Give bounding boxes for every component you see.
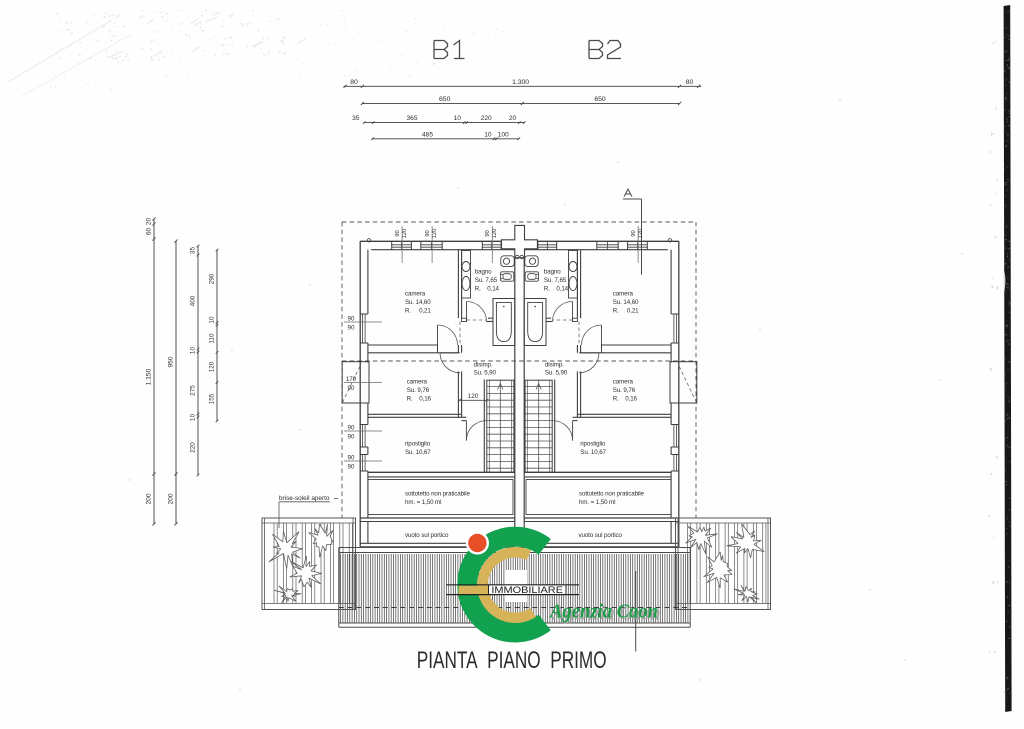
svg-text:200: 200 xyxy=(168,493,175,504)
svg-text:200: 200 xyxy=(146,493,153,504)
svg-text:90: 90 xyxy=(395,230,401,236)
svg-text:365: 365 xyxy=(406,115,417,122)
svg-text:Agenzia Caon: Agenzia Caon xyxy=(548,601,658,623)
svg-text:camera: camera xyxy=(405,291,426,298)
svg-text:80: 80 xyxy=(350,79,358,86)
svg-text:155: 155 xyxy=(209,393,216,404)
svg-text:R. 0,16: R. 0,16 xyxy=(407,395,432,402)
svg-text:90: 90 xyxy=(348,463,355,470)
svg-text:120: 120 xyxy=(492,229,498,239)
svg-text:R. 0,14: R. 0,14 xyxy=(544,285,569,292)
svg-text:170: 170 xyxy=(346,376,357,383)
svg-text:camera: camera xyxy=(407,379,428,386)
svg-text:sottotetto non praticabile: sottotetto non praticabile xyxy=(579,491,644,498)
svg-text:20: 20 xyxy=(146,218,153,226)
svg-text:camera: camera xyxy=(613,379,634,386)
svg-text:90: 90 xyxy=(631,230,637,236)
svg-text:90: 90 xyxy=(348,454,355,461)
svg-text:90: 90 xyxy=(348,315,355,322)
svg-text:10: 10 xyxy=(484,131,492,138)
svg-text:950: 950 xyxy=(168,356,175,367)
svg-text:90: 90 xyxy=(425,230,431,236)
svg-text:120: 120 xyxy=(402,229,408,239)
svg-text:10: 10 xyxy=(454,115,462,122)
svg-text:R. 0,21: R. 0,21 xyxy=(405,307,431,314)
svg-text:R. 0,14: R. 0,14 xyxy=(475,285,500,292)
svg-text:Su. 9,76: Su. 9,76 xyxy=(407,387,430,394)
svg-text:Su. 7,65: Su. 7,65 xyxy=(475,277,498,284)
svg-text:disimp.: disimp. xyxy=(545,361,564,368)
svg-text:90: 90 xyxy=(485,230,491,236)
svg-text:R. 0,21: R. 0,21 xyxy=(613,307,639,314)
svg-text:110: 110 xyxy=(209,333,216,344)
svg-text:Su. 10,67: Su. 10,67 xyxy=(405,449,431,456)
svg-text:PIANTA PIANO PRIMO: PIANTA PIANO PRIMO xyxy=(417,647,607,674)
svg-text:IMMOBILIARE: IMMOBILIARE xyxy=(491,585,563,595)
svg-text:120: 120 xyxy=(209,361,216,372)
svg-text:1.300: 1.300 xyxy=(512,79,529,86)
svg-text:90: 90 xyxy=(348,324,355,331)
svg-text:220: 220 xyxy=(481,115,492,122)
svg-text:120: 120 xyxy=(638,229,644,239)
svg-text:Su. 14,60: Su. 14,60 xyxy=(405,299,431,306)
svg-text:camera: camera xyxy=(613,291,634,298)
svg-text:hm. = 1,50 ml: hm. = 1,50 ml xyxy=(405,499,441,506)
svg-text:120: 120 xyxy=(468,393,479,400)
svg-text:vuoto sul portico: vuoto sul portico xyxy=(579,532,623,539)
svg-text:10: 10 xyxy=(190,347,197,355)
svg-text:brise-soleil aperto: brise-soleil aperto xyxy=(279,495,330,502)
svg-text:20: 20 xyxy=(509,115,517,122)
svg-text:650: 650 xyxy=(439,96,451,103)
svg-text:disimp.: disimp. xyxy=(474,361,493,368)
svg-text:Su. 9,76: Su. 9,76 xyxy=(613,387,636,394)
svg-text:100: 100 xyxy=(498,131,509,138)
svg-text:Su. 5,90: Su. 5,90 xyxy=(545,370,568,377)
svg-text:10: 10 xyxy=(190,414,197,422)
svg-text:bagno: bagno xyxy=(475,269,492,276)
svg-text:R. 0,16: R. 0,16 xyxy=(613,395,638,402)
svg-text:485: 485 xyxy=(422,131,433,138)
svg-text:hm. = 1,50 ml: hm. = 1,50 ml xyxy=(579,499,615,506)
svg-text:220: 220 xyxy=(190,442,197,453)
svg-text:90: 90 xyxy=(348,385,355,392)
svg-text:35: 35 xyxy=(190,247,197,255)
svg-text:90: 90 xyxy=(348,424,355,431)
svg-text:Su. 10,67: Su. 10,67 xyxy=(580,449,606,456)
svg-text:1.150: 1.150 xyxy=(146,368,153,385)
svg-text:275: 275 xyxy=(190,385,197,396)
svg-text:60: 60 xyxy=(146,228,153,236)
svg-text:sottotetto non praticabile: sottotetto non praticabile xyxy=(405,491,470,498)
svg-text:290: 290 xyxy=(209,273,216,284)
svg-text:Su. 14,60: Su. 14,60 xyxy=(613,299,639,306)
svg-text:90: 90 xyxy=(348,433,355,440)
svg-text:Su. 7,65: Su. 7,65 xyxy=(544,277,567,284)
svg-text:120: 120 xyxy=(432,229,438,239)
svg-text:650: 650 xyxy=(594,96,606,103)
svg-text:35: 35 xyxy=(352,115,360,122)
svg-text:80: 80 xyxy=(686,79,694,86)
svg-text:ripostiglio: ripostiglio xyxy=(580,441,606,448)
svg-text:ripostiglio: ripostiglio xyxy=(405,441,431,448)
svg-text:bagno: bagno xyxy=(544,269,561,276)
svg-text:vuoto sul portico: vuoto sul portico xyxy=(405,532,449,539)
svg-text:Su. 5,90: Su. 5,90 xyxy=(474,370,497,377)
svg-text:10: 10 xyxy=(209,316,216,324)
svg-text:400: 400 xyxy=(190,295,197,306)
